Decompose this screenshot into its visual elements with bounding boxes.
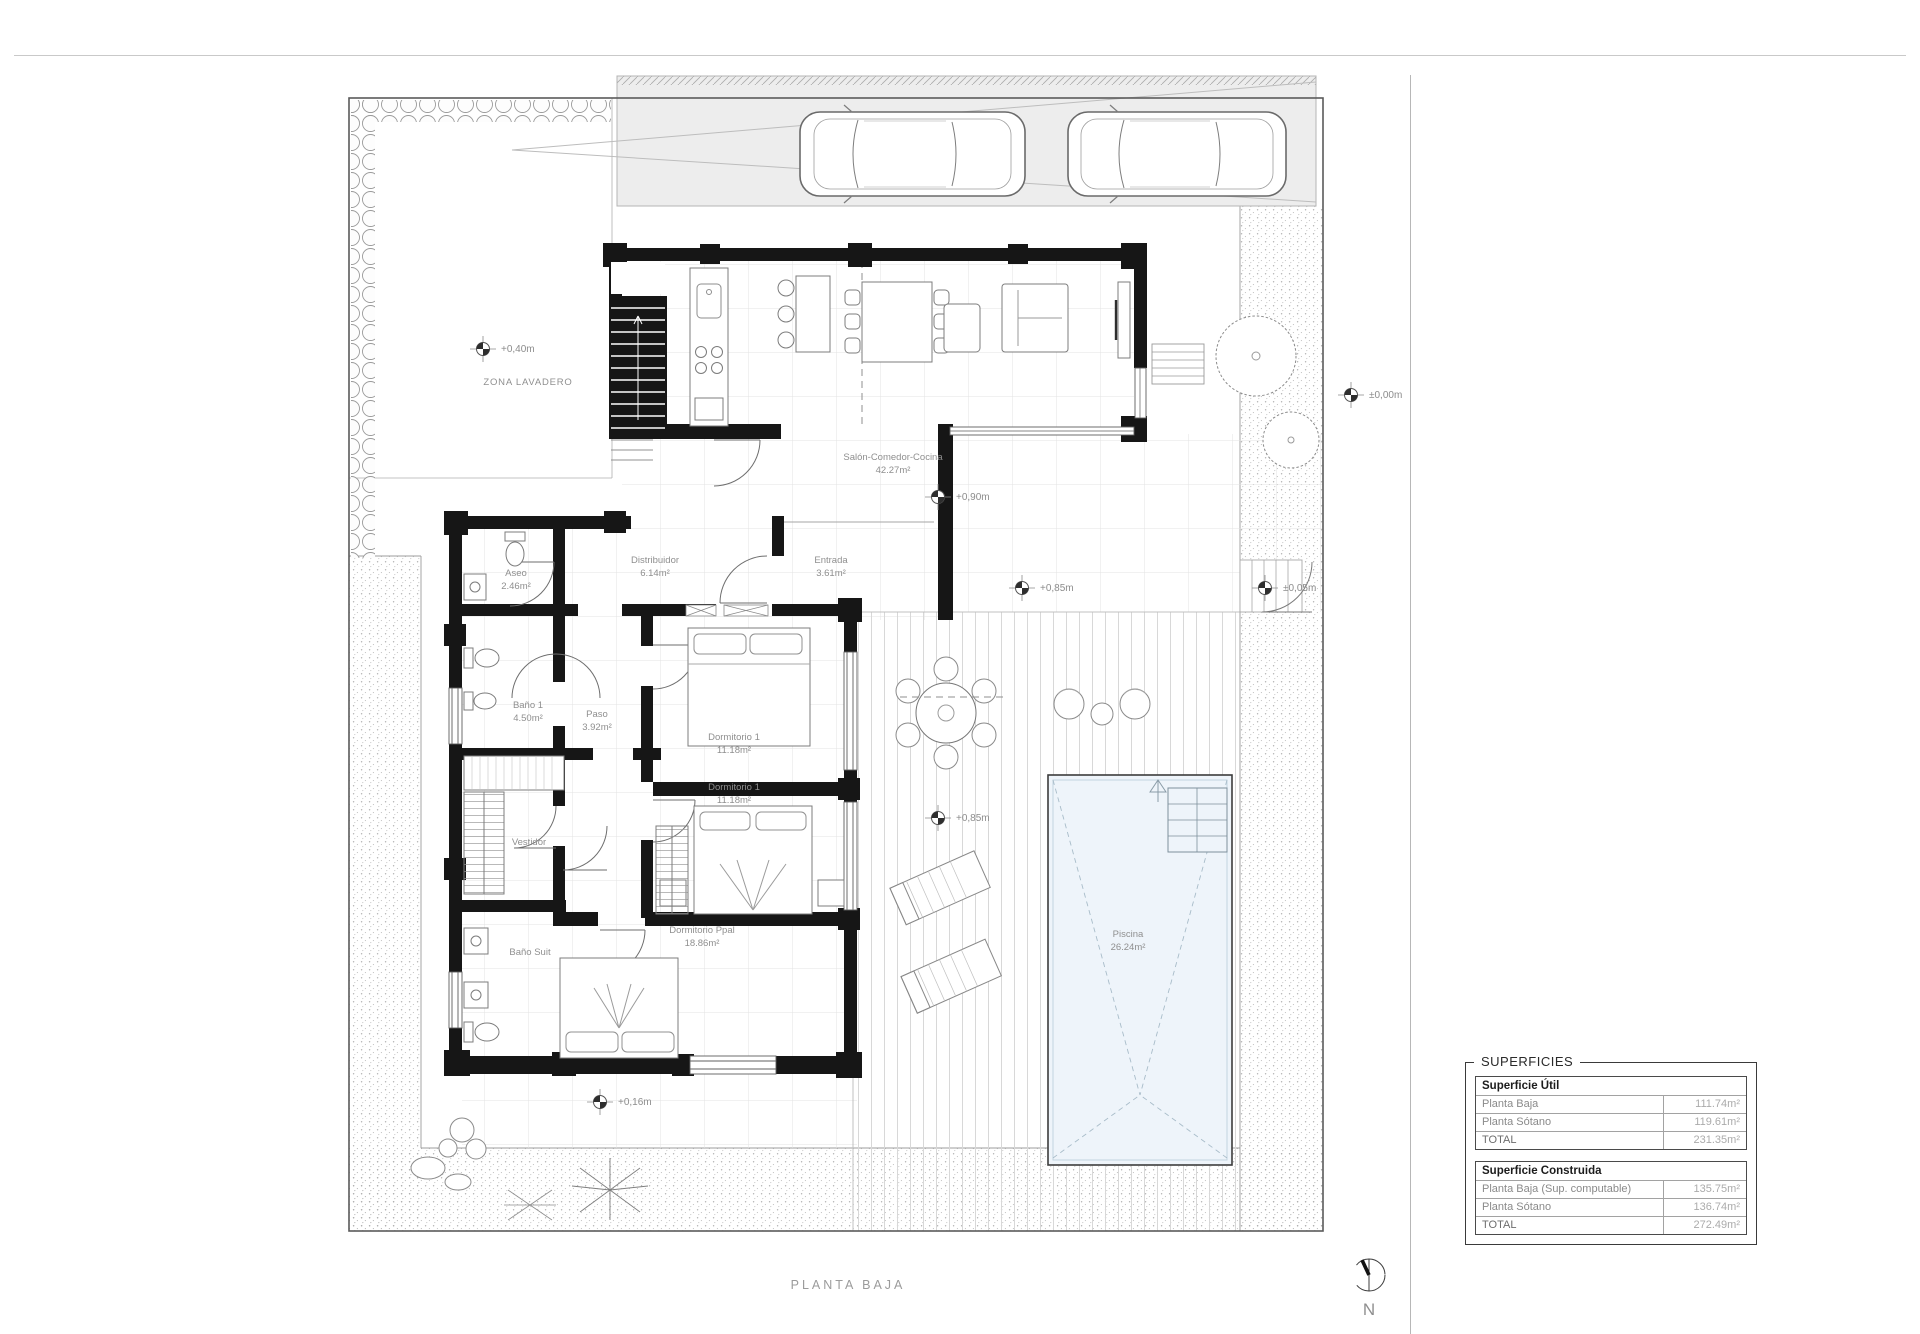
level-icon	[470, 336, 496, 362]
room-label-banyo-suit: Baño Suit	[509, 946, 550, 959]
level-icon	[1338, 382, 1364, 408]
thresholds	[686, 605, 768, 616]
table-row-total: TOTAL 272.49m²	[1476, 1216, 1746, 1234]
level-marker: +0,16m	[587, 1089, 652, 1115]
bed	[688, 628, 810, 746]
room-label-dormitorio-ppal: Dormitorio Ppal18.86m²	[669, 924, 734, 950]
room-label-aseo: Aseo2.46m²	[501, 567, 531, 593]
room-label-paso: Paso3.92m²	[582, 708, 612, 734]
floor-plan-page: Salón-Comedor-Cocina42.27m² Distribuidor…	[0, 0, 1920, 1334]
bed	[560, 958, 678, 1058]
room-label-banyo1: Baño 14.50m²	[513, 699, 543, 725]
level-icon	[587, 1089, 613, 1115]
summary-section-util: Superficie Útil Planta Baja 111.74m² Pla…	[1475, 1076, 1747, 1150]
level-marker: ±0,00m	[1338, 382, 1402, 408]
level-icon	[925, 484, 951, 510]
level-marker: +0,40m	[470, 336, 535, 362]
level-marker: +0,85m	[925, 805, 990, 831]
room-label-distribuidor: Distribuidor6.14m²	[631, 554, 679, 580]
page-title: PLANTA BAJA	[791, 1278, 906, 1292]
exterior-steps	[1152, 344, 1204, 384]
pool-steps	[1168, 788, 1227, 852]
summary-section-construida: Superficie Construida Planta Baja (Sup. …	[1475, 1161, 1747, 1235]
staircase	[609, 262, 667, 460]
table-row: Planta Sótano 136.74m²	[1476, 1198, 1746, 1216]
summary-title: SUPERFICIES	[1474, 1054, 1580, 1069]
table-row: Planta Sótano 119.61m²	[1476, 1113, 1746, 1131]
table-row: Planta Baja (Sup. computable) 135.75m²	[1476, 1180, 1746, 1198]
level-marker: ±0,05m	[1252, 575, 1316, 601]
room-label-piscina: Piscina26.24m²	[1111, 928, 1146, 954]
surfaces-summary-table: SUPERFICIES Superficie Útil Planta Baja …	[1465, 1062, 1757, 1245]
section-header: Superficie Útil	[1476, 1077, 1746, 1095]
room-label-vestidor: Vestidor	[512, 836, 546, 849]
level-icon	[925, 805, 951, 831]
table-row: Planta Baja 111.74m²	[1476, 1095, 1746, 1113]
car-icon	[1068, 105, 1286, 203]
table-row-total: TOTAL 231.35m²	[1476, 1131, 1746, 1149]
kitchen-counter	[690, 268, 728, 426]
level-icon	[1252, 575, 1278, 601]
level-marker: +0,90m	[925, 484, 990, 510]
room-label-entrada: Entrada3.61m²	[814, 554, 847, 580]
north-label: N	[1363, 1300, 1375, 1320]
tv-bench	[1116, 282, 1130, 358]
page-top-rule	[14, 55, 1906, 56]
north-arrow-icon	[1347, 1253, 1391, 1297]
level-marker: +0,85m	[1009, 575, 1074, 601]
room-label-salon: Salón-Comedor-Cocina42.27m²	[843, 451, 942, 477]
page-right-rule	[1410, 75, 1411, 1334]
zone-lavadero-label: ZONA LAVADERO	[483, 376, 572, 389]
room-label-dormitorio1-a: Dormitorio 111.18m²	[708, 731, 760, 757]
room-label-dormitorio1-b: Dormitorio 111.18m²	[708, 781, 760, 807]
section-header: Superficie Construida	[1476, 1162, 1746, 1180]
pool	[1048, 775, 1232, 1165]
level-icon	[1009, 575, 1035, 601]
car-icon	[800, 105, 1025, 203]
